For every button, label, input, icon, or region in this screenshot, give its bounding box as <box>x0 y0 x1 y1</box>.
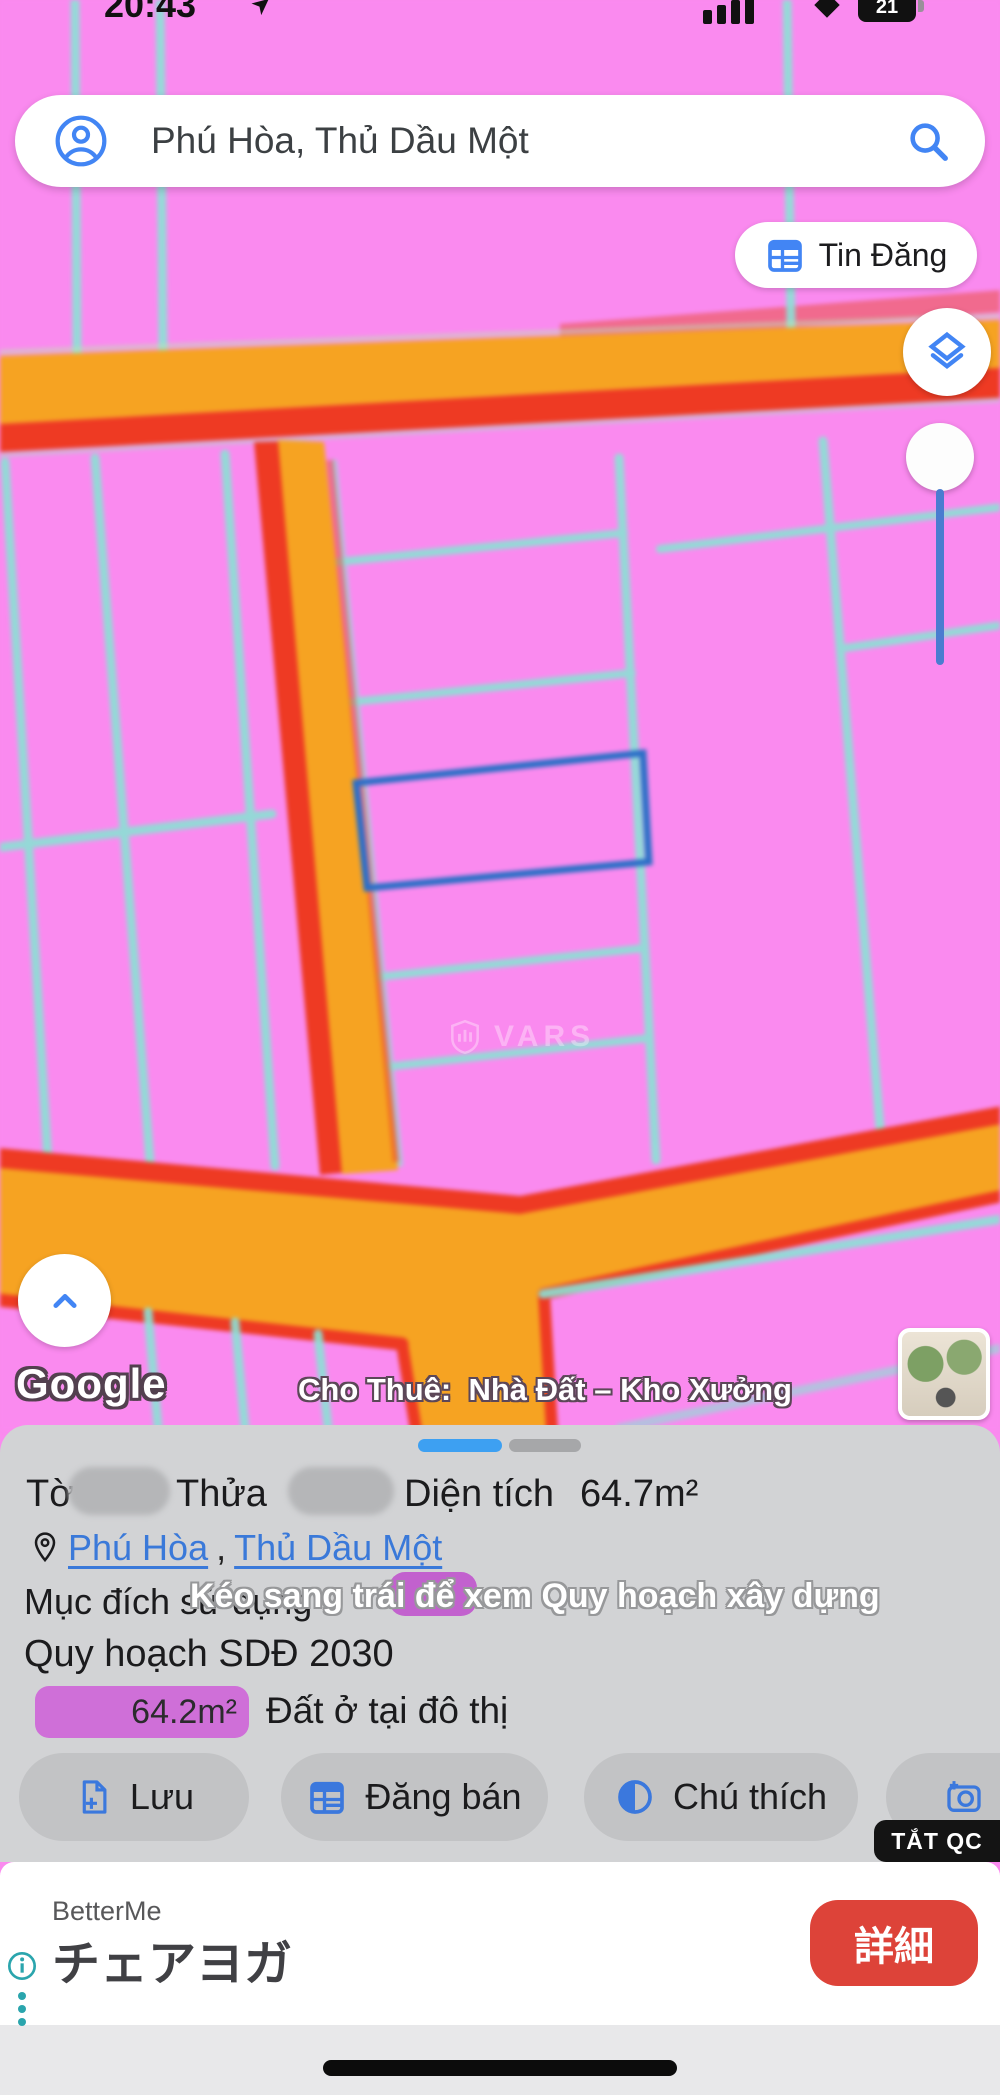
sheet-number-label: Tờ <box>26 1473 74 1516</box>
tin-dang-button[interactable]: Tin Đăng <box>735 222 977 288</box>
expand-sheet-button[interactable] <box>18 1254 111 1347</box>
vars-watermark: VARS <box>446 1018 595 1056</box>
parcel-number-label: Thửa <box>176 1473 267 1516</box>
app-screen: VARS 20:43 ➤ 21 Phú Hòa, Thủ Dầu Một Tin… <box>0 0 1000 2095</box>
home-indicator[interactable] <box>323 2060 677 2076</box>
page-indicator-active <box>418 1439 502 1452</box>
zone-land-type: Đất ở tại đô thị <box>266 1690 508 1732</box>
account-icon[interactable] <box>53 113 109 169</box>
location-separator: , <box>216 1527 226 1569</box>
signal-strength-icon <box>703 0 754 24</box>
ad-cta-button[interactable]: 詳細 <box>810 1900 978 1986</box>
save-button[interactable]: Lưu <box>19 1753 249 1841</box>
listing-grid-icon <box>307 1777 347 1817</box>
vars-shield-icon <box>446 1018 484 1056</box>
layers-icon <box>921 326 973 378</box>
search-icon[interactable] <box>905 118 951 164</box>
post-listing-label: Đăng bán <box>365 1776 521 1818</box>
area-label: Diện tích <box>404 1473 554 1516</box>
save-button-label: Lưu <box>130 1776 194 1818</box>
ad-banner[interactable]: BetterMe チェアヨガ 詳細 <box>0 1862 1000 2025</box>
zoom-slider-track[interactable] <box>936 489 944 665</box>
planning-map[interactable] <box>0 0 1000 1430</box>
camera-plus-icon <box>943 1777 985 1817</box>
ward-link[interactable]: Phú Hòa <box>68 1527 208 1569</box>
parcel-info-sheet[interactable]: Tờ Thửa Diện tích 64.7m² Phú Hòa , Thủ D… <box>0 1425 1000 1862</box>
plan-label: Quy hoạch SDĐ 2030 <box>24 1633 394 1676</box>
ad-menu-icon[interactable] <box>18 1992 26 2026</box>
google-watermark: Google <box>16 1360 167 1408</box>
map-pin-icon <box>30 1529 60 1567</box>
search-bar[interactable]: Phú Hòa, Thủ Dầu Một <box>15 95 985 187</box>
post-listing-button[interactable]: Đăng bán <box>281 1753 548 1841</box>
listing-thumbnail[interactable] <box>898 1328 990 1420</box>
ad-title: チェアヨガ <box>52 1924 292 1994</box>
dismiss-ad-button[interactable]: TẮT QC <box>874 1820 1000 1862</box>
tin-dang-label: Tin Đăng <box>819 237 948 274</box>
area-value: 64.7m² <box>580 1473 698 1516</box>
ad-info-icon[interactable] <box>6 1950 38 1982</box>
legend-icon <box>615 1777 655 1817</box>
listing-grid-icon <box>765 235 805 275</box>
legend-button[interactable]: Chú thích <box>584 1753 858 1841</box>
battery-icon: 21 <box>858 0 916 22</box>
ad-brand: BetterMe <box>52 1896 162 1927</box>
city-link[interactable]: Thủ Dầu Một <box>234 1527 442 1569</box>
location-row: Phú Hòa , Thủ Dầu Một <box>30 1527 442 1569</box>
vars-watermark-text: VARS <box>494 1020 595 1054</box>
chevron-up-icon <box>43 1279 87 1323</box>
page-indicator-inactive <box>509 1439 581 1452</box>
zoom-slider-knob[interactable] <box>906 423 974 491</box>
status-time: 20:43 <box>104 0 196 26</box>
search-input[interactable]: Phú Hòa, Thủ Dầu Một <box>151 120 905 162</box>
map-listing-label: Cho Thuê: Nhà Đất – Kho Xưởng <box>298 1372 792 1408</box>
document-plus-icon <box>74 1777 112 1817</box>
zone-area-badge: 64.2m² <box>35 1686 249 1738</box>
legend-button-label: Chú thích <box>673 1776 827 1818</box>
swipe-hint-overlay: Kéo sang trái để xem Quy hoạch xây dựng <box>190 1577 880 1616</box>
redacted-parcel-number <box>288 1467 394 1515</box>
redacted-sheet-number <box>68 1467 170 1515</box>
layers-button[interactable] <box>903 308 991 396</box>
